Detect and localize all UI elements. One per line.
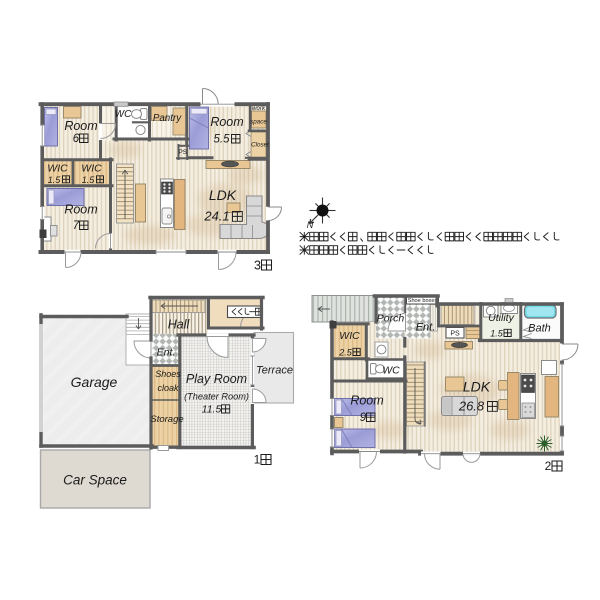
svg-text:1.5: 1.5: [490, 329, 504, 339]
svg-text:2: 2: [545, 459, 552, 473]
svg-text:Utility: Utility: [488, 312, 514, 324]
svg-text:6: 6: [73, 133, 80, 145]
svg-text:WIC: WIC: [47, 163, 68, 175]
svg-text:Ent.: Ent.: [416, 322, 436, 334]
svg-text:Shoes: Shoes: [155, 369, 181, 379]
svg-text:Shoe boxes: Shoe boxes: [408, 298, 438, 304]
svg-text:space: space: [250, 119, 267, 126]
svg-text:Porch: Porch: [377, 313, 405, 325]
svg-text:Room: Room: [210, 115, 243, 129]
svg-text:(Theater Room): (Theater Room): [184, 392, 249, 402]
svg-text:cloak: cloak: [157, 383, 179, 393]
svg-text:26.8: 26.8: [458, 399, 485, 414]
svg-text:WIC: WIC: [339, 330, 360, 342]
svg-text:Play Room: Play Room: [186, 372, 247, 386]
svg-text:Storage: Storage: [150, 414, 183, 425]
svg-text:Car Space: Car Space: [63, 473, 127, 488]
svg-text:WC: WC: [115, 109, 132, 120]
svg-text:Ent.: Ent.: [157, 347, 176, 359]
svg-text:Closet: Closet: [251, 142, 269, 149]
svg-text:1.5: 1.5: [82, 175, 96, 185]
svg-text:24.1: 24.1: [203, 209, 229, 224]
svg-text:Room: Room: [64, 203, 97, 217]
svg-text:N: N: [307, 220, 314, 230]
svg-text:LDK: LDK: [463, 379, 491, 395]
svg-text:LDK: LDK: [209, 187, 237, 203]
svg-text:11.5: 11.5: [202, 404, 222, 416]
svg-text:Pantry: Pantry: [153, 113, 182, 124]
svg-text:Hall: Hall: [168, 318, 191, 332]
svg-text:9: 9: [360, 412, 367, 424]
svg-text:WC: WC: [382, 365, 400, 377]
svg-text:Room: Room: [350, 394, 383, 408]
svg-text:3: 3: [254, 259, 261, 273]
svg-text:Bath: Bath: [528, 323, 551, 335]
svg-text:Garage: Garage: [71, 374, 118, 390]
svg-text:5.5: 5.5: [214, 134, 231, 146]
svg-text:Room: Room: [64, 119, 97, 133]
svg-text:2.5: 2.5: [338, 348, 353, 358]
svg-text:Terrace: Terrace: [256, 365, 293, 377]
svg-text:WIC: WIC: [81, 163, 102, 175]
svg-text:1.5: 1.5: [48, 175, 62, 185]
svg-text:PS: PS: [450, 331, 460, 338]
svg-text:PS: PS: [178, 149, 187, 156]
svg-text:work: work: [252, 105, 266, 112]
svg-text:7: 7: [73, 220, 80, 232]
svg-text:1: 1: [254, 453, 261, 467]
